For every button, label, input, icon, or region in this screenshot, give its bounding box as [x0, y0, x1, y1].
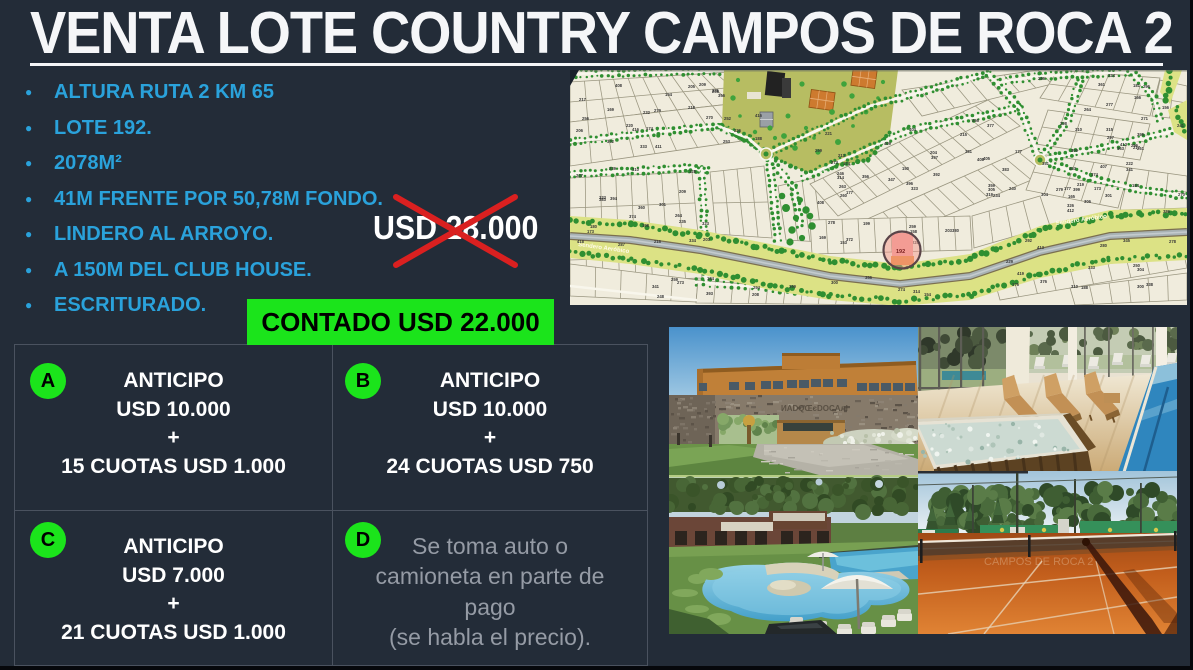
- svg-text:154: 154: [665, 92, 673, 97]
- svg-text:407: 407: [1100, 164, 1108, 169]
- svg-text:166: 166: [1134, 95, 1142, 100]
- svg-text:CAMPOS DE ROCA 2: CAMPOS DE ROCA 2: [984, 556, 1093, 568]
- svg-text:399: 399: [1073, 187, 1081, 192]
- svg-text:ИАDQŒєDОСAлІ: ИАDQŒєDОСAлІ: [781, 404, 848, 413]
- svg-text:381: 381: [965, 149, 973, 154]
- svg-text:411: 411: [655, 144, 662, 149]
- svg-text:419: 419: [1017, 271, 1025, 276]
- svg-text:273: 273: [677, 280, 685, 285]
- svg-text:413: 413: [1037, 245, 1045, 250]
- svg-text:154: 154: [924, 292, 932, 297]
- svg-text:287: 287: [618, 242, 626, 247]
- svg-text:412: 412: [1067, 208, 1075, 213]
- svg-text:356: 356: [862, 174, 870, 179]
- svg-text:361: 361: [1098, 82, 1106, 87]
- svg-text:393: 393: [706, 291, 714, 296]
- svg-text:301: 301: [659, 202, 667, 207]
- svg-text:270: 270: [1178, 192, 1186, 197]
- svg-text:274: 274: [898, 287, 906, 292]
- svg-text:177: 177: [1064, 186, 1072, 191]
- svg-text:177: 177: [1015, 149, 1023, 154]
- svg-text:334: 334: [689, 238, 697, 243]
- svg-text:203: 203: [703, 237, 711, 242]
- svg-text:184: 184: [1132, 183, 1140, 188]
- svg-text:278: 278: [1169, 239, 1177, 244]
- svg-text:239: 239: [609, 166, 617, 171]
- svg-text:281: 281: [712, 88, 720, 93]
- svg-text:333: 333: [599, 195, 607, 200]
- svg-text:278: 278: [828, 220, 836, 225]
- svg-text:188: 188: [755, 136, 763, 141]
- svg-text:229: 229: [1006, 259, 1014, 264]
- svg-text:213: 213: [838, 153, 846, 158]
- svg-text:260: 260: [840, 193, 848, 198]
- svg-text:374: 374: [1091, 172, 1099, 177]
- svg-text:169: 169: [819, 235, 827, 240]
- svg-text:300: 300: [1137, 284, 1145, 289]
- svg-text:377: 377: [987, 123, 995, 128]
- svg-text:199: 199: [863, 221, 871, 226]
- svg-text:174: 174: [843, 161, 851, 166]
- svg-text:173: 173: [587, 229, 595, 234]
- svg-text:408: 408: [817, 200, 825, 205]
- svg-text:174: 174: [646, 126, 654, 131]
- svg-text:394: 394: [610, 196, 618, 201]
- svg-text:408: 408: [977, 157, 985, 162]
- svg-text:177: 177: [846, 190, 854, 195]
- svg-text:237: 237: [576, 173, 584, 178]
- svg-text:292: 292: [1025, 238, 1033, 243]
- svg-text:345: 345: [1123, 238, 1131, 243]
- svg-text:409: 409: [884, 141, 892, 146]
- svg-text:234: 234: [993, 193, 1001, 198]
- svg-text:188: 188: [1081, 285, 1089, 290]
- svg-text:392: 392: [933, 172, 941, 177]
- svg-text:294: 294: [753, 285, 761, 290]
- svg-text:356: 356: [972, 118, 980, 123]
- svg-text:226: 226: [734, 128, 742, 133]
- svg-text:270: 270: [706, 115, 714, 120]
- svg-text:216: 216: [654, 239, 662, 244]
- svg-text:264: 264: [675, 213, 683, 218]
- svg-text:351: 351: [1042, 161, 1050, 166]
- svg-text:380: 380: [952, 228, 960, 233]
- svg-text:347: 347: [888, 177, 896, 182]
- svg-text:217: 217: [579, 97, 587, 102]
- svg-text:399: 399: [789, 284, 797, 289]
- svg-text:256: 256: [582, 116, 590, 121]
- svg-text:304: 304: [1041, 192, 1049, 197]
- svg-text:314: 314: [913, 289, 921, 294]
- svg-text:323: 323: [702, 221, 710, 226]
- svg-text:386: 386: [1163, 209, 1171, 214]
- svg-text:319: 319: [986, 192, 994, 197]
- svg-text:176: 176: [1012, 282, 1020, 287]
- svg-text:224: 224: [1108, 73, 1116, 78]
- svg-text:416: 416: [632, 127, 640, 132]
- svg-text:363: 363: [1117, 146, 1125, 151]
- svg-text:315: 315: [1106, 127, 1114, 132]
- svg-text:215: 215: [960, 132, 968, 137]
- svg-text:218: 218: [688, 105, 696, 110]
- svg-text:306: 306: [1084, 199, 1092, 204]
- svg-text:248: 248: [657, 294, 665, 299]
- svg-text:240: 240: [1009, 186, 1017, 191]
- svg-text:253: 253: [723, 139, 731, 144]
- svg-text:356: 356: [865, 275, 873, 280]
- svg-text:418: 418: [577, 239, 585, 244]
- svg-text:273: 273: [831, 160, 839, 165]
- svg-text:304: 304: [1137, 267, 1145, 272]
- svg-text:271: 271: [1141, 116, 1149, 121]
- svg-text:300: 300: [831, 280, 839, 285]
- svg-text:221: 221: [825, 131, 833, 136]
- svg-text:395: 395: [1137, 132, 1145, 137]
- svg-text:232: 232: [643, 110, 651, 115]
- svg-text:416: 416: [755, 113, 763, 118]
- svg-text:408: 408: [615, 83, 623, 88]
- svg-text:235: 235: [679, 219, 687, 224]
- svg-text:314: 314: [837, 175, 845, 180]
- svg-text:286: 286: [1038, 76, 1046, 81]
- svg-text:299: 299: [815, 148, 823, 153]
- svg-text:333: 333: [1088, 265, 1096, 270]
- svg-text:252: 252: [724, 116, 732, 121]
- svg-text:150: 150: [902, 166, 910, 171]
- svg-text:341: 341: [652, 284, 660, 289]
- svg-text:241: 241: [1177, 123, 1185, 128]
- svg-text:302: 302: [607, 139, 615, 144]
- svg-text:153: 153: [1069, 166, 1077, 171]
- svg-text:323: 323: [911, 186, 919, 191]
- svg-text:325: 325: [689, 169, 697, 174]
- svg-text:300: 300: [1071, 148, 1079, 153]
- svg-text:360: 360: [638, 205, 646, 210]
- svg-text:405: 405: [983, 156, 991, 161]
- svg-text:404: 404: [909, 127, 917, 132]
- svg-text:376: 376: [1040, 279, 1048, 284]
- svg-text:383: 383: [1002, 167, 1010, 172]
- svg-text:298: 298: [1060, 121, 1068, 126]
- svg-text:296: 296: [1131, 143, 1139, 148]
- svg-text:341: 341: [1126, 167, 1134, 172]
- svg-text:279: 279: [654, 108, 662, 113]
- svg-text:279: 279: [1056, 187, 1064, 192]
- svg-text:310: 310: [1071, 284, 1079, 289]
- svg-text:277: 277: [1106, 102, 1114, 107]
- svg-text:180: 180: [590, 224, 598, 229]
- svg-text:374: 374: [629, 214, 637, 219]
- svg-text:169: 169: [607, 107, 615, 112]
- svg-text:220: 220: [626, 123, 634, 128]
- svg-text:205: 205: [688, 84, 696, 89]
- svg-text:184: 184: [707, 276, 715, 281]
- svg-text:297: 297: [1107, 135, 1115, 140]
- svg-text:173: 173: [1094, 186, 1102, 191]
- svg-text:280: 280: [1100, 243, 1108, 248]
- svg-text:208: 208: [752, 292, 760, 297]
- svg-text:296: 296: [1143, 84, 1151, 89]
- svg-text:209: 209: [679, 189, 687, 194]
- svg-text:165: 165: [1068, 194, 1076, 199]
- svg-text:209: 209: [699, 82, 707, 87]
- svg-text:263: 263: [839, 184, 847, 189]
- svg-text:192: 192: [896, 249, 905, 255]
- svg-text:156: 156: [1162, 105, 1170, 110]
- svg-text:310: 310: [632, 167, 640, 172]
- svg-text:359: 359: [988, 183, 996, 188]
- svg-text:372: 372: [846, 237, 854, 242]
- svg-text:310: 310: [1075, 127, 1083, 132]
- svg-text:397: 397: [931, 155, 939, 160]
- svg-text:264: 264: [1084, 107, 1092, 112]
- svg-text:333: 333: [640, 144, 648, 149]
- svg-text:206: 206: [576, 128, 584, 133]
- svg-text:356: 356: [718, 93, 726, 98]
- svg-text:198: 198: [642, 223, 650, 228]
- svg-text:222: 222: [1126, 161, 1134, 166]
- svg-text:338: 338: [1146, 282, 1154, 287]
- svg-text:301: 301: [1105, 193, 1113, 198]
- svg-text:181: 181: [1133, 83, 1141, 88]
